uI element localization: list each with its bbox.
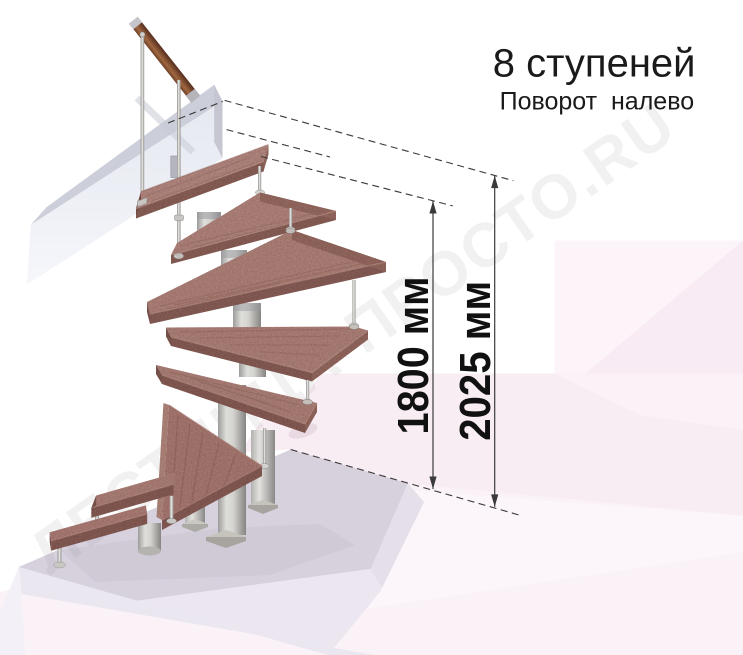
svg-text:1800 мм: 1800 мм <box>390 277 438 435</box>
svg-text:2025 мм: 2025 мм <box>452 281 500 441</box>
svg-text:Поворот налево: Поворот налево <box>500 87 694 115</box>
svg-text:8 ступеней: 8 ступеней <box>493 42 696 86</box>
